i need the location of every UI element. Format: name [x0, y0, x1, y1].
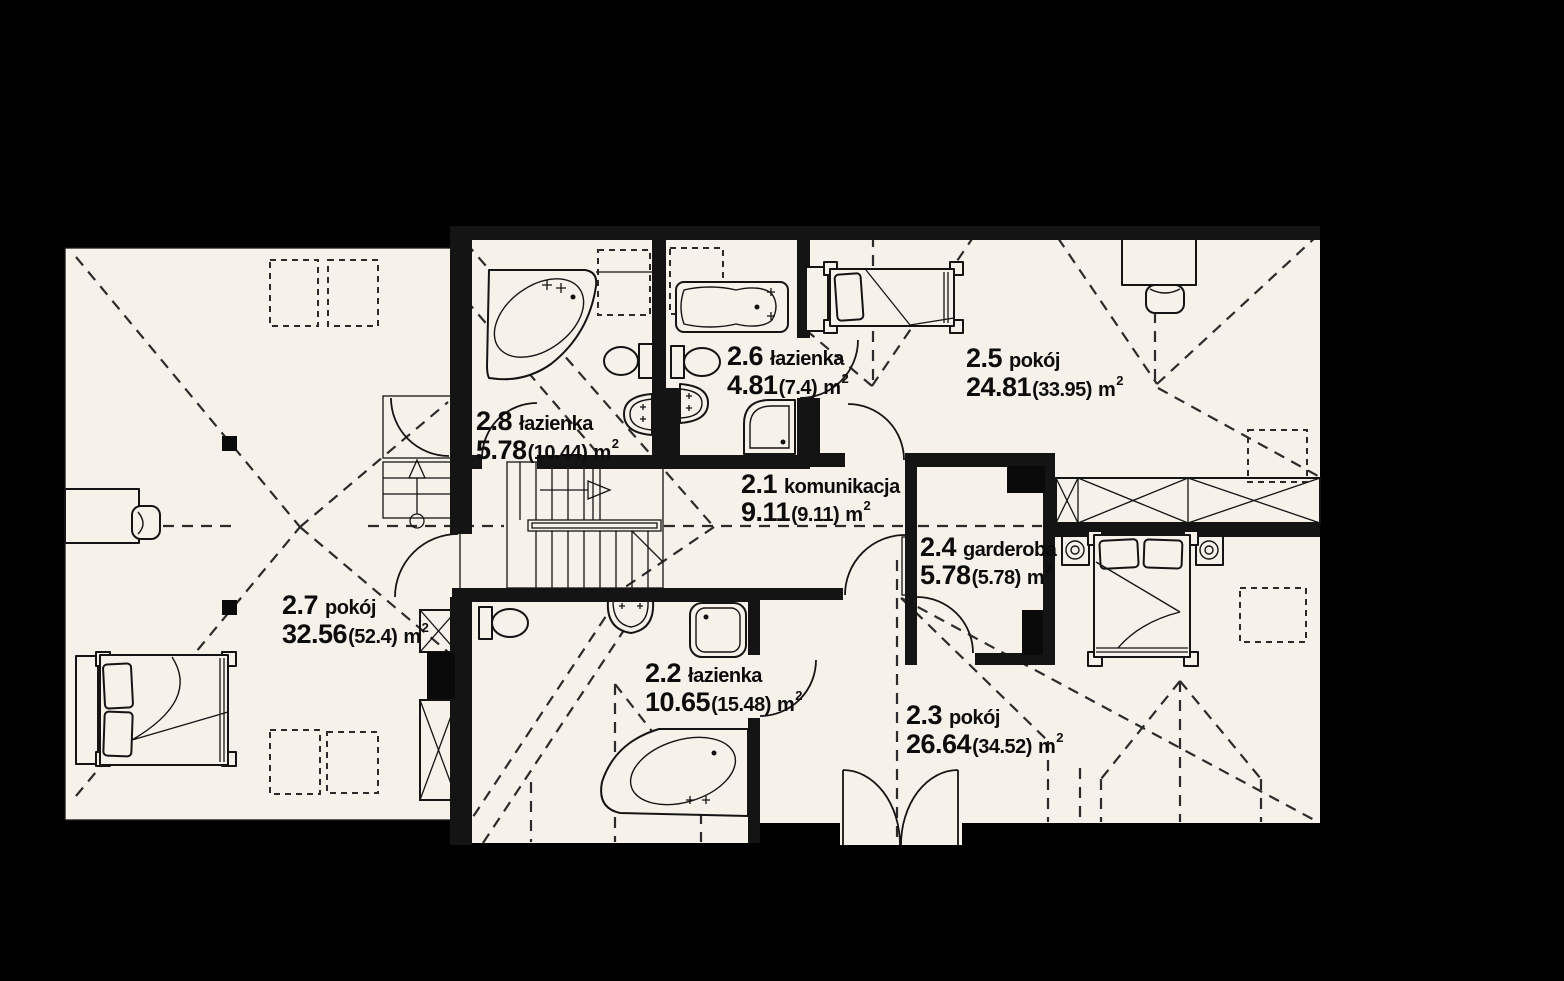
bathtub [676, 282, 788, 332]
wall-segment [452, 588, 760, 602]
toilet [479, 607, 528, 639]
wall-segment [652, 388, 680, 460]
shower [690, 603, 746, 657]
wall-segment [905, 453, 1055, 467]
wall-segment [452, 226, 1320, 240]
wall-segment [760, 588, 843, 600]
column [222, 600, 237, 615]
wall-segment [652, 238, 666, 388]
wall-segment [450, 226, 472, 534]
toilet [671, 346, 720, 378]
wall-segment [748, 718, 760, 843]
wardrobe-block [1022, 610, 1043, 655]
nightstand [1196, 536, 1223, 565]
floor-plan-svg: 2.8łazienka 5.78(10.44)m2 2.6łazienka 4.… [0, 0, 1564, 981]
single-bed [806, 262, 963, 333]
column [222, 436, 237, 451]
wardrobe-block [1007, 466, 1045, 493]
wall-segment [810, 453, 845, 467]
nightstand [1062, 536, 1089, 565]
double-bed [1088, 531, 1198, 666]
double-bed [76, 652, 236, 766]
wall-segment [450, 597, 472, 845]
wall-segment [748, 588, 760, 655]
toilet [604, 344, 653, 378]
corner-shower [744, 400, 795, 454]
floor-plan: 2.8łazienka 5.78(10.44)m2 2.6łazienka 4.… [0, 0, 1564, 981]
wall-segment [797, 398, 820, 460]
